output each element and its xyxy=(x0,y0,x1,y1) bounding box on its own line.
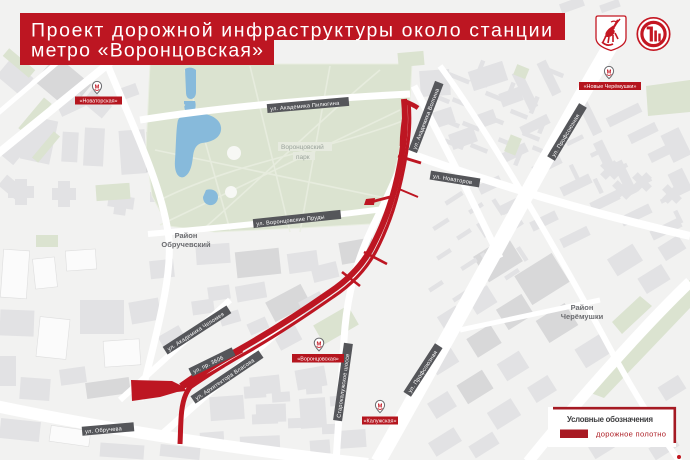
svg-text:Район: Район xyxy=(175,231,198,240)
svg-text:Черёмушки: Черёмушки xyxy=(561,312,604,321)
svg-text:«Воронцовская»: «Воронцовская» xyxy=(297,356,338,362)
svg-text:Условные обозначения: Условные обозначения xyxy=(567,415,653,424)
svg-text:Воронцовский: Воронцовский xyxy=(281,143,324,151)
svg-text:Район: Район xyxy=(571,303,594,312)
svg-text:«Новые Черёмушки»: «Новые Черёмушки» xyxy=(584,84,637,90)
svg-text:Проект дорожной инфраструктуры: Проект дорожной инфраструктуры около ста… xyxy=(31,20,552,42)
svg-text:парк: парк xyxy=(296,154,310,161)
svg-text:дорожное полотно: дорожное полотно xyxy=(596,430,666,439)
svg-text:«Калужская»: «Калужская» xyxy=(364,419,397,425)
svg-text:Обручевский: Обручевский xyxy=(161,240,211,249)
svg-text:«Новаторская»: «Новаторская» xyxy=(79,99,117,105)
svg-text:метро «Воронцовская»: метро «Воронцовская» xyxy=(31,40,263,62)
